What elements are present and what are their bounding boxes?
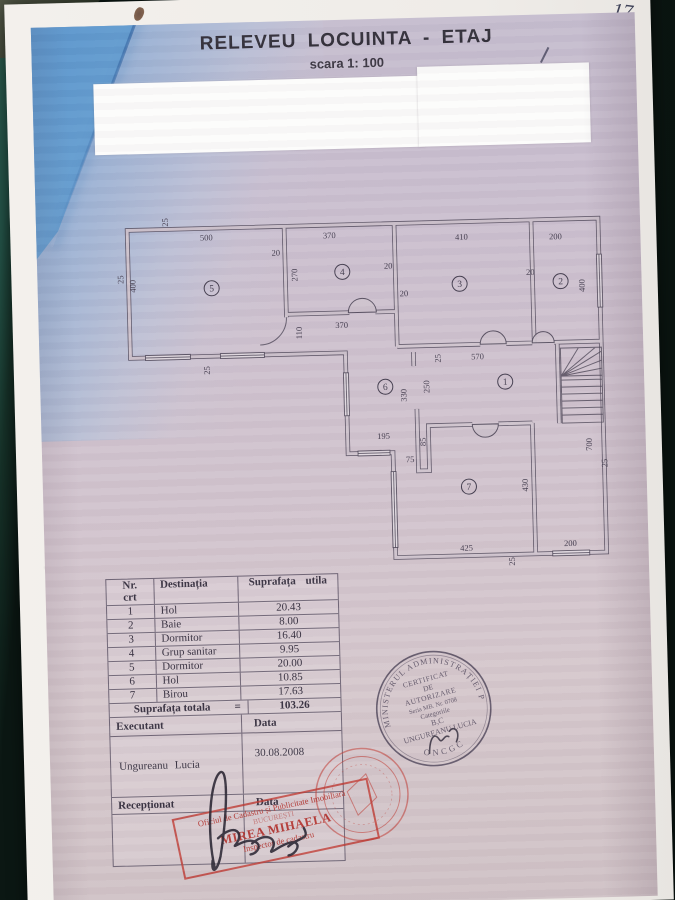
- plan-dimension: 20: [384, 261, 393, 271]
- door-arc: [472, 424, 498, 438]
- plan-dimension: 195: [377, 431, 390, 441]
- cell-destinatia: Birou: [157, 687, 242, 702]
- cell-destinatia: Hol: [155, 603, 240, 618]
- table-body: 1Hol20.432Baie8.003Dormitor16.404Grup sa…: [107, 600, 340, 704]
- handwritten-signature: [190, 757, 338, 879]
- cell-destinatia: Hol: [156, 673, 241, 688]
- plan-dimension: 20: [399, 288, 408, 298]
- plan-dimension: 700: [584, 438, 594, 451]
- cell-nr: 7: [109, 689, 157, 703]
- photo-of-document: 17 RELEVEU LOCUINTA - ETAJ scara 1: 100: [0, 0, 675, 900]
- plan-dimension: 400: [577, 279, 587, 292]
- room-number: 6: [383, 383, 388, 393]
- cell-nr: 1: [107, 605, 155, 619]
- plan-dimension: 370: [335, 320, 348, 330]
- header-destinatia: Destinația: [154, 577, 239, 604]
- plan-dimension: 25: [202, 366, 212, 375]
- data-label: Data: [242, 715, 341, 730]
- plan-dimension: 25: [599, 459, 609, 468]
- plan-dimension: 200: [549, 231, 562, 241]
- equals-sign: =: [234, 700, 248, 713]
- plan-dimension: 330: [398, 389, 408, 402]
- room-number: 4: [340, 268, 345, 278]
- header-nr: Nr.crt: [106, 579, 154, 605]
- plan-dimension: 75: [406, 454, 415, 464]
- cell-destinatia: Dormitor: [155, 631, 240, 646]
- cell-destinatia: Grup sanitar: [156, 645, 241, 660]
- cell-suprafata: 8.00: [239, 614, 338, 630]
- plan-dimension: 430: [520, 479, 530, 492]
- cell-suprafata: 20.00: [240, 656, 339, 672]
- cell-suprafata: 9.95: [240, 642, 339, 658]
- plan-dimension: 85: [418, 437, 428, 446]
- redaction-rectangle: [417, 62, 591, 146]
- cell-nr: 5: [108, 661, 156, 675]
- floor-plan: 5002525400203702702020410200204001103702…: [114, 204, 624, 587]
- cell-suprafata: 10.85: [241, 670, 340, 686]
- plan-dimension: 410: [455, 232, 468, 242]
- plan-dimension: 20: [526, 267, 535, 277]
- plan-dimension: 500: [200, 232, 213, 242]
- room-number: 1: [503, 378, 508, 388]
- door-arc: [348, 298, 376, 313]
- paper-sheet: 17 RELEVEU LOCUINTA - ETAJ scara 1: 100: [4, 0, 674, 900]
- door-arc: [480, 331, 506, 345]
- plan-dimension: 110: [294, 327, 304, 340]
- stamp-arc-bottom-text: ONCGC: [421, 736, 468, 762]
- plan-dimension: 200: [564, 538, 577, 548]
- plan-dimension: 400: [127, 280, 137, 293]
- cell-nr: 3: [108, 633, 156, 647]
- plan-dimension: 20: [271, 247, 280, 257]
- cell-destinatia: Dormitor: [156, 659, 241, 674]
- plan-dimension: 425: [460, 543, 473, 553]
- staircase: [560, 347, 603, 423]
- plan-dimension: 25: [160, 218, 170, 227]
- header-suprafata: Suprafața utila: [238, 574, 338, 602]
- room-number: 3: [457, 280, 462, 290]
- scanned-content: RELEVEU LOCUINTA - ETAJ scara 1: 100: [31, 12, 658, 900]
- plan-dimension: 270: [289, 269, 299, 282]
- executant-label: Executant: [110, 715, 242, 736]
- plan-walls-inner: [127, 218, 607, 564]
- cell-destinatia: Baie: [155, 617, 240, 632]
- room-number: 7: [466, 483, 471, 493]
- door-arc: [259, 317, 287, 345]
- plan-dimension: 370: [323, 230, 336, 240]
- room-number: 2: [558, 277, 563, 287]
- cell-nr: 4: [108, 647, 156, 661]
- plan-dimension: 25: [432, 354, 442, 363]
- cell-nr: 2: [107, 619, 155, 633]
- room-number: 5: [209, 284, 214, 294]
- cell-nr: 6: [109, 675, 157, 689]
- plan-dimension: 250: [421, 380, 431, 393]
- redaction-rectangle: [93, 76, 425, 156]
- cell-suprafata: 16.40: [240, 628, 339, 644]
- total-value: 103.26: [248, 698, 341, 713]
- plan-dimension: 25: [507, 557, 517, 566]
- plan-dimension: 570: [471, 351, 484, 361]
- svg-text:ONCGC: ONCGC: [421, 736, 468, 762]
- cell-suprafata: 20.43: [239, 600, 338, 616]
- cell-suprafata: 17.63: [241, 684, 340, 700]
- plan-dimension: 25: [115, 275, 125, 284]
- windows: [143, 254, 609, 566]
- ink-smudge: [132, 6, 145, 22]
